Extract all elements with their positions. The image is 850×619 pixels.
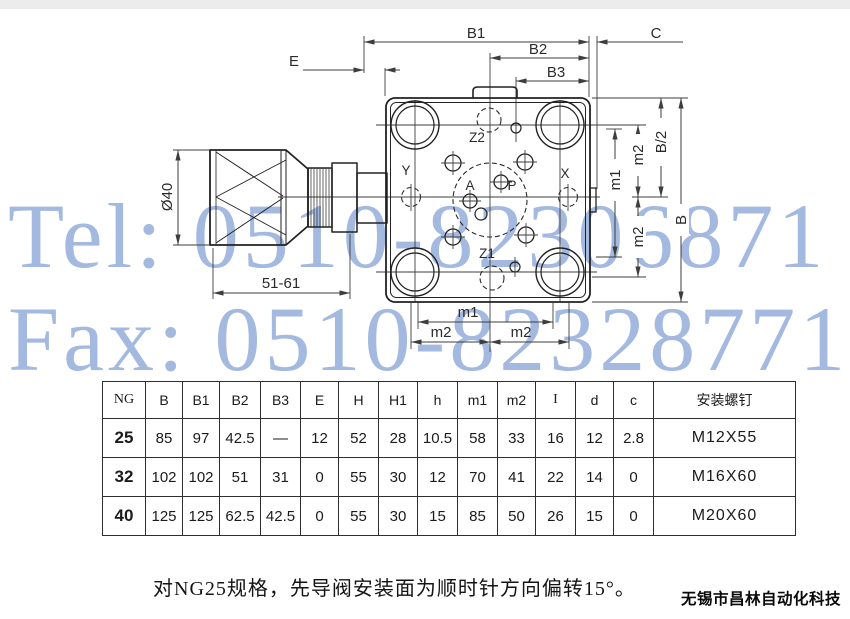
dim-knob-length: 51-61 <box>262 275 300 292</box>
port-a: A <box>465 178 474 193</box>
dim-b-half: B/2 <box>653 131 670 154</box>
dim-m2-bottom-right: m2 <box>511 324 532 341</box>
dim-c: C <box>651 25 662 42</box>
top-gray-strip <box>0 0 850 9</box>
dim-m1-bottom: m1 <box>458 304 479 321</box>
dim-m1-right: m1 <box>607 170 624 191</box>
valve-dimension-drawing: B1 C B2 B3 E Ø40 51-61 m1 m2 m2 m1 m2 B/… <box>0 0 850 619</box>
port-z1: Z1 <box>479 246 495 261</box>
pilot-mount-holes <box>441 150 538 249</box>
port-z2: Z2 <box>469 130 485 145</box>
dim-b1: B1 <box>467 25 485 42</box>
dim-b3: B3 <box>547 64 565 81</box>
thread-hatch <box>311 168 329 227</box>
dim-b: B <box>673 215 690 225</box>
dim-e: E <box>289 53 299 70</box>
port-p: P <box>507 178 516 193</box>
dashed-port-circles <box>402 108 578 290</box>
dim-m2-right-top: m2 <box>630 145 647 166</box>
dim-dia40: Ø40 <box>159 183 176 211</box>
valve-body-face <box>386 87 596 302</box>
dim-b2: B2 <box>529 41 547 58</box>
dim-m2-bottom-left: m2 <box>431 324 452 341</box>
hand-knob-view <box>210 150 387 245</box>
port-x: X <box>560 166 569 181</box>
port-labels: Z2 Z1 A P X Y <box>401 130 569 261</box>
dim-m2-right-bottom: m2 <box>630 227 647 248</box>
technical-drawing-page: Tel: 0510-82306871 Fax: 0510-82328771 <box>0 0 850 619</box>
port-y: Y <box>401 163 410 178</box>
